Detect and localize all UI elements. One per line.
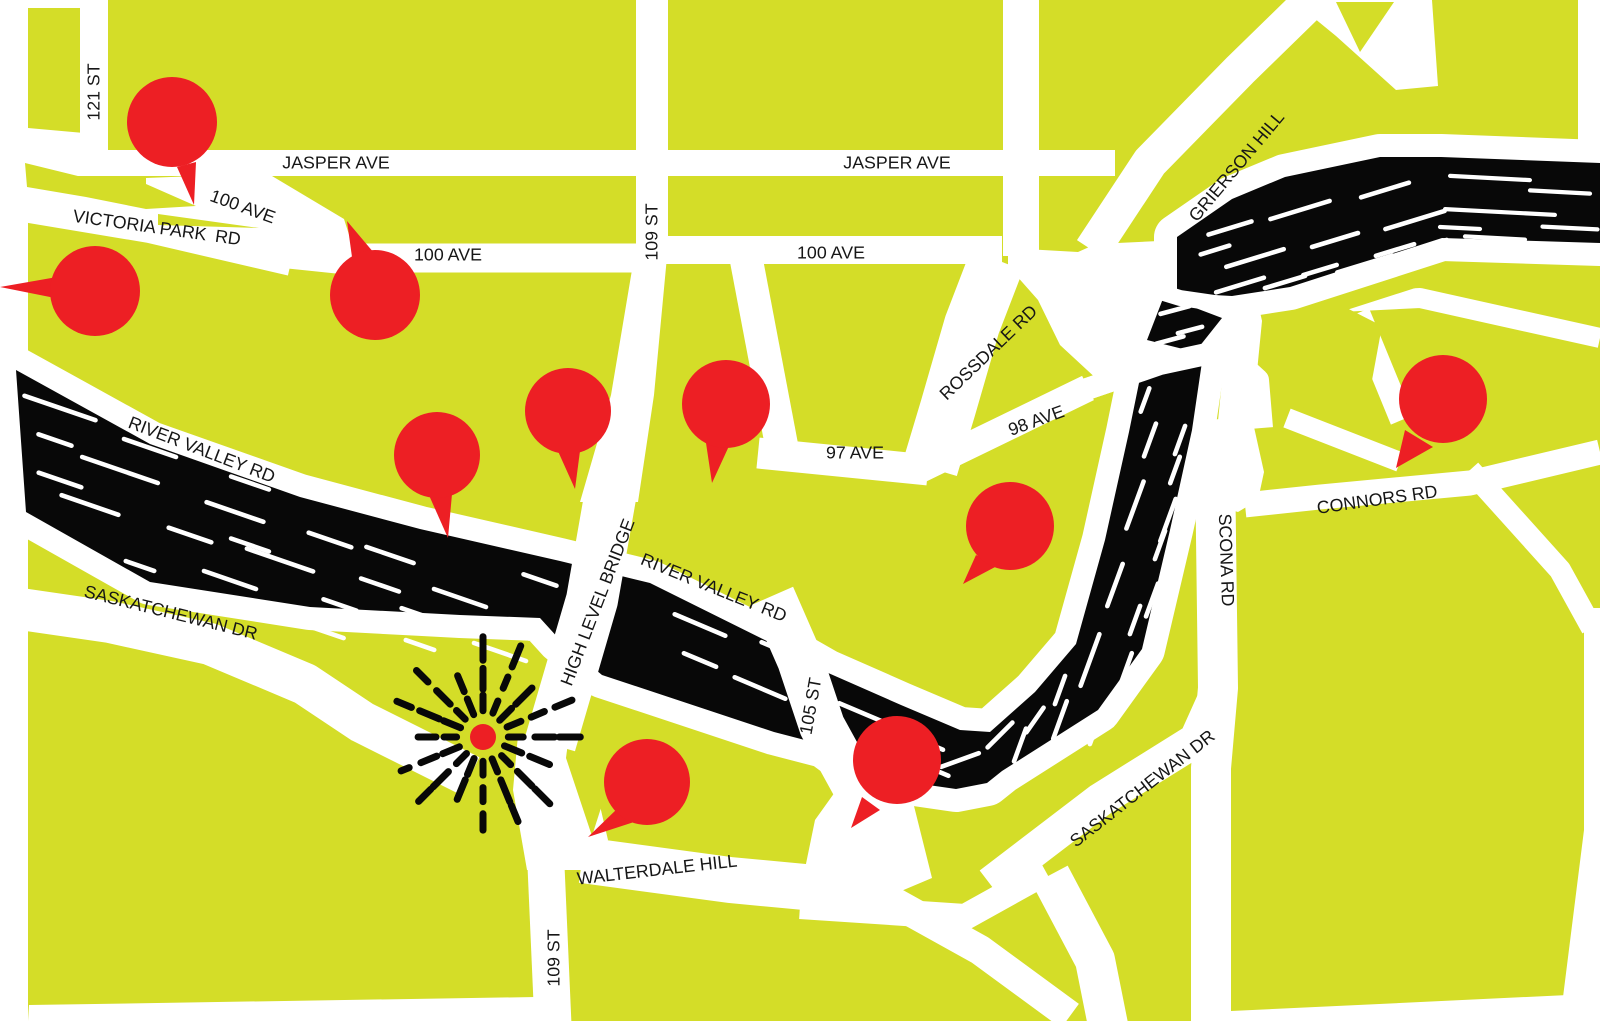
svg-text:121 ST: 121 ST [84,63,104,120]
svg-text:100 AVE: 100 AVE [797,243,865,263]
svg-text:109 ST: 109 ST [544,929,564,986]
svg-text:97 AVE: 97 AVE [826,443,884,463]
svg-text:JASPER AVE: JASPER AVE [282,153,390,173]
svg-text:100 AVE: 100 AVE [414,245,482,265]
svg-text:109 ST: 109 ST [642,203,662,260]
svg-text:SCONA RD: SCONA RD [1215,513,1238,607]
svg-text:JASPER AVE: JASPER AVE [843,153,951,173]
